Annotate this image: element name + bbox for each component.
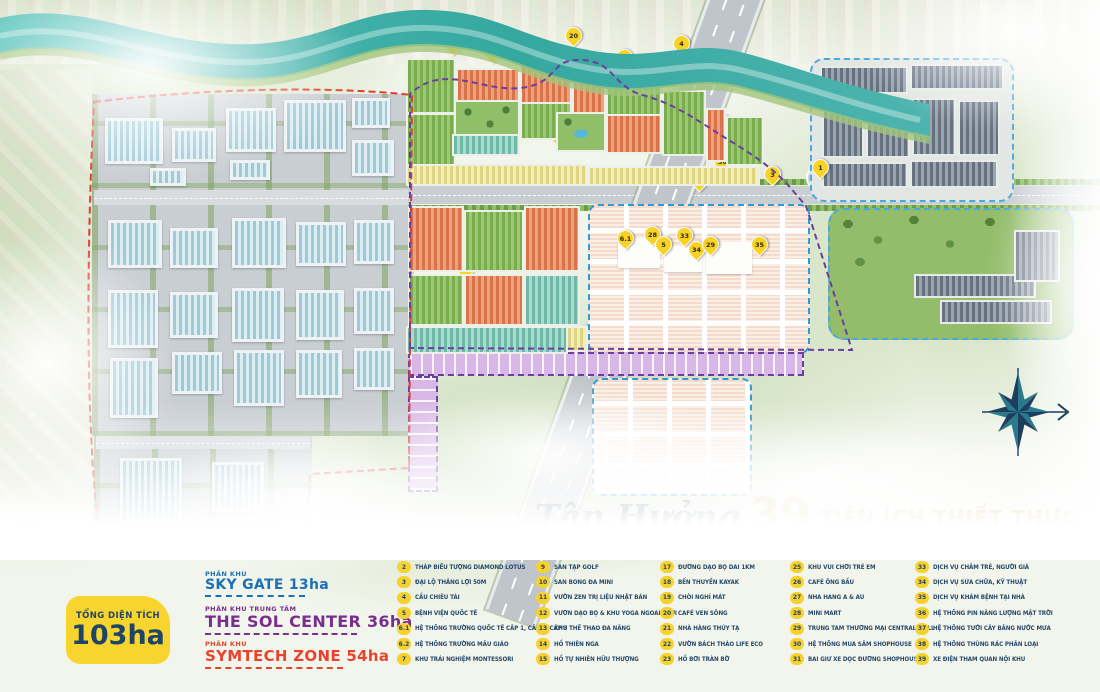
amenity-number-badge: 23 bbox=[660, 653, 674, 665]
amenity-label: KHU THỂ THAO ĐA NĂNG bbox=[554, 625, 631, 632]
zone-dash-line bbox=[205, 633, 357, 635]
amenity-number-badge: 22 bbox=[660, 638, 674, 650]
amenity-label: VƯỜN DẠO BỘ & KHU YOGA NGOÀI TRỜI bbox=[554, 610, 677, 617]
amenity-label: HỆ THỐNG MUA SẮM SHOPHOUSE bbox=[808, 641, 912, 648]
amenity-label: HỆ THỐNG THÙNG RÁC PHÂN LOẠI bbox=[933, 641, 1038, 648]
amenity-label: CAFÉ VEN SÔNG bbox=[678, 610, 728, 617]
amenity-item: 13KHU THỂ THAO ĐA NĂNG bbox=[536, 621, 658, 636]
amenity-item: 23HỒ BƠI TRÀN BỜ bbox=[660, 652, 788, 667]
amenity-number-badge: 20 bbox=[660, 607, 674, 619]
amenity-label: BỆNH VIỆN QUỐC TẾ bbox=[415, 610, 477, 617]
amenity-item: 21NHÀ HÀNG THỦY TẠ bbox=[660, 621, 788, 636]
amenity-item: 31BÃI GIỮ XE DỌC ĐƯỜNG SHOPHOUSE bbox=[790, 652, 913, 667]
amenity-item: 29TRUNG TÂM THƯƠNG MẠI CENTRAL MALL bbox=[790, 621, 913, 636]
amenity-item: 12VƯỜN DẠO BỘ & KHU YOGA NGOÀI TRỜI bbox=[536, 606, 658, 621]
amenity-number-badge: 5 bbox=[397, 607, 411, 619]
amenity-label: VƯỜN BÁCH THẢO LIFE ECO bbox=[678, 641, 763, 648]
amenity-number-badge: 7 bbox=[397, 653, 411, 665]
sol-center-boundary bbox=[410, 60, 852, 350]
amenity-item: 6.2HỆ THỐNG TRƯỜNG MẪU GIÁO bbox=[397, 636, 535, 651]
amenity-number-badge: 6.2 bbox=[397, 638, 411, 650]
amenity-item: 37HỆ THỐNG TƯỚI CÂY BẰNG NƯỚC MƯA bbox=[915, 621, 1090, 636]
amenity-label: BÃI GIỮ XE DỌC ĐƯỜNG SHOPHOUSE bbox=[808, 656, 921, 663]
zone-name: THE SOL CENTER 36ha bbox=[205, 613, 413, 631]
total-area-badge: TỔNG DIỆN TÍCH 103ha bbox=[66, 596, 170, 664]
amenity-number-badge: 39 bbox=[915, 653, 929, 665]
amenity-number-badge: 15 bbox=[536, 653, 550, 665]
amenity-number-badge: 12 bbox=[536, 607, 550, 619]
amenity-label: HỆ THỐNG TƯỚI CÂY BẰNG NƯỚC MƯA bbox=[933, 625, 1051, 632]
compass-icon bbox=[980, 362, 1080, 462]
amenity-label: HỒ TỰ NHIÊN HỮU THƯỢNG bbox=[554, 656, 639, 663]
amenity-label: NHÀ HÀNG THỦY TẠ bbox=[678, 625, 739, 632]
amenity-item: 36HỆ THỐNG PIN NĂNG LƯỢNG MẶT TRỜI bbox=[915, 606, 1090, 621]
amenity-label: MINI MART bbox=[808, 610, 841, 617]
amenity-label: HỒ THIÊN NGA bbox=[554, 641, 599, 648]
amenity-label: HỆ THỐNG PIN NĂNG LƯỢNG MẶT TRỜI bbox=[933, 610, 1053, 617]
zone-entry-the-sol-center: PHÂN KHU TRUNG TÂM THE SOL CENTER 36ha bbox=[205, 605, 413, 635]
zone-name: SYMTECH ZONE 54ha bbox=[205, 648, 389, 665]
amenity-number-badge: 13 bbox=[536, 623, 550, 635]
amenity-number-badge: 14 bbox=[536, 638, 550, 650]
amenity-item: 22VƯỜN BÁCH THẢO LIFE ECO bbox=[660, 636, 788, 651]
masterplan-poster: 1219181520211741661027142213982325242631… bbox=[0, 0, 1100, 692]
amenity-number-badge: 31 bbox=[790, 653, 804, 665]
amenity-item: 28MINI MART bbox=[790, 606, 913, 621]
amenity-number-badge: 29 bbox=[790, 623, 804, 635]
amenity-label: HỒ BƠI TRÀN BỜ bbox=[678, 656, 729, 663]
amenity-item: 15HỒ TỰ NHIÊN HỮU THƯỢNG bbox=[536, 652, 658, 667]
amenity-number-badge: 6.1 bbox=[397, 623, 411, 635]
amenity-number-badge: 28 bbox=[790, 607, 804, 619]
amenity-label: HỆ THỐNG TRƯỜNG MẪU GIÁO bbox=[415, 641, 509, 648]
amenity-item: 14HỒ THIÊN NGA bbox=[536, 636, 658, 651]
amenity-item: 38HỆ THỐNG THÙNG RÁC PHÂN LOẠI bbox=[915, 636, 1090, 651]
amenity-item: 39XE ĐIỆN THAM QUAN NỘI KHU bbox=[915, 652, 1090, 667]
amenity-number-badge: 36 bbox=[915, 607, 929, 619]
amenity-item: 6.1HỆ THỐNG TRƯỜNG QUỐC TẾ CẤP 1, CẤP 2,… bbox=[397, 621, 535, 636]
amenity-label: XE ĐIỆN THAM QUAN NỘI KHU bbox=[933, 656, 1025, 663]
zone-entry-symtech-zone: PHÂN KHU SYMTECH ZONE 54ha bbox=[205, 640, 389, 669]
zone-dash-line bbox=[205, 667, 343, 669]
amenity-item: 7KHU TRẢI NGHIỆM MONTESSORI bbox=[397, 652, 535, 667]
amenity-item: 30HỆ THỐNG MUA SẮM SHOPHOUSE bbox=[790, 636, 913, 651]
amenity-item: 20CAFÉ VEN SÔNG bbox=[660, 606, 788, 621]
amenity-number-badge: 21 bbox=[660, 623, 674, 635]
amenity-number-badge: 37 bbox=[915, 623, 929, 635]
amenity-number-badge: 38 bbox=[915, 638, 929, 650]
amenity-number-badge: 30 bbox=[790, 638, 804, 650]
total-area-value: 103ha bbox=[71, 622, 165, 649]
amenity-label: KHU TRẢI NGHIỆM MONTESSORI bbox=[415, 656, 513, 663]
amenity-item: 5BỆNH VIỆN QUỐC TẾ bbox=[397, 606, 535, 621]
map-bottom-fade bbox=[0, 400, 1100, 560]
masterplan-map: 1219181520211741661027142213982325242631… bbox=[0, 0, 1100, 692]
